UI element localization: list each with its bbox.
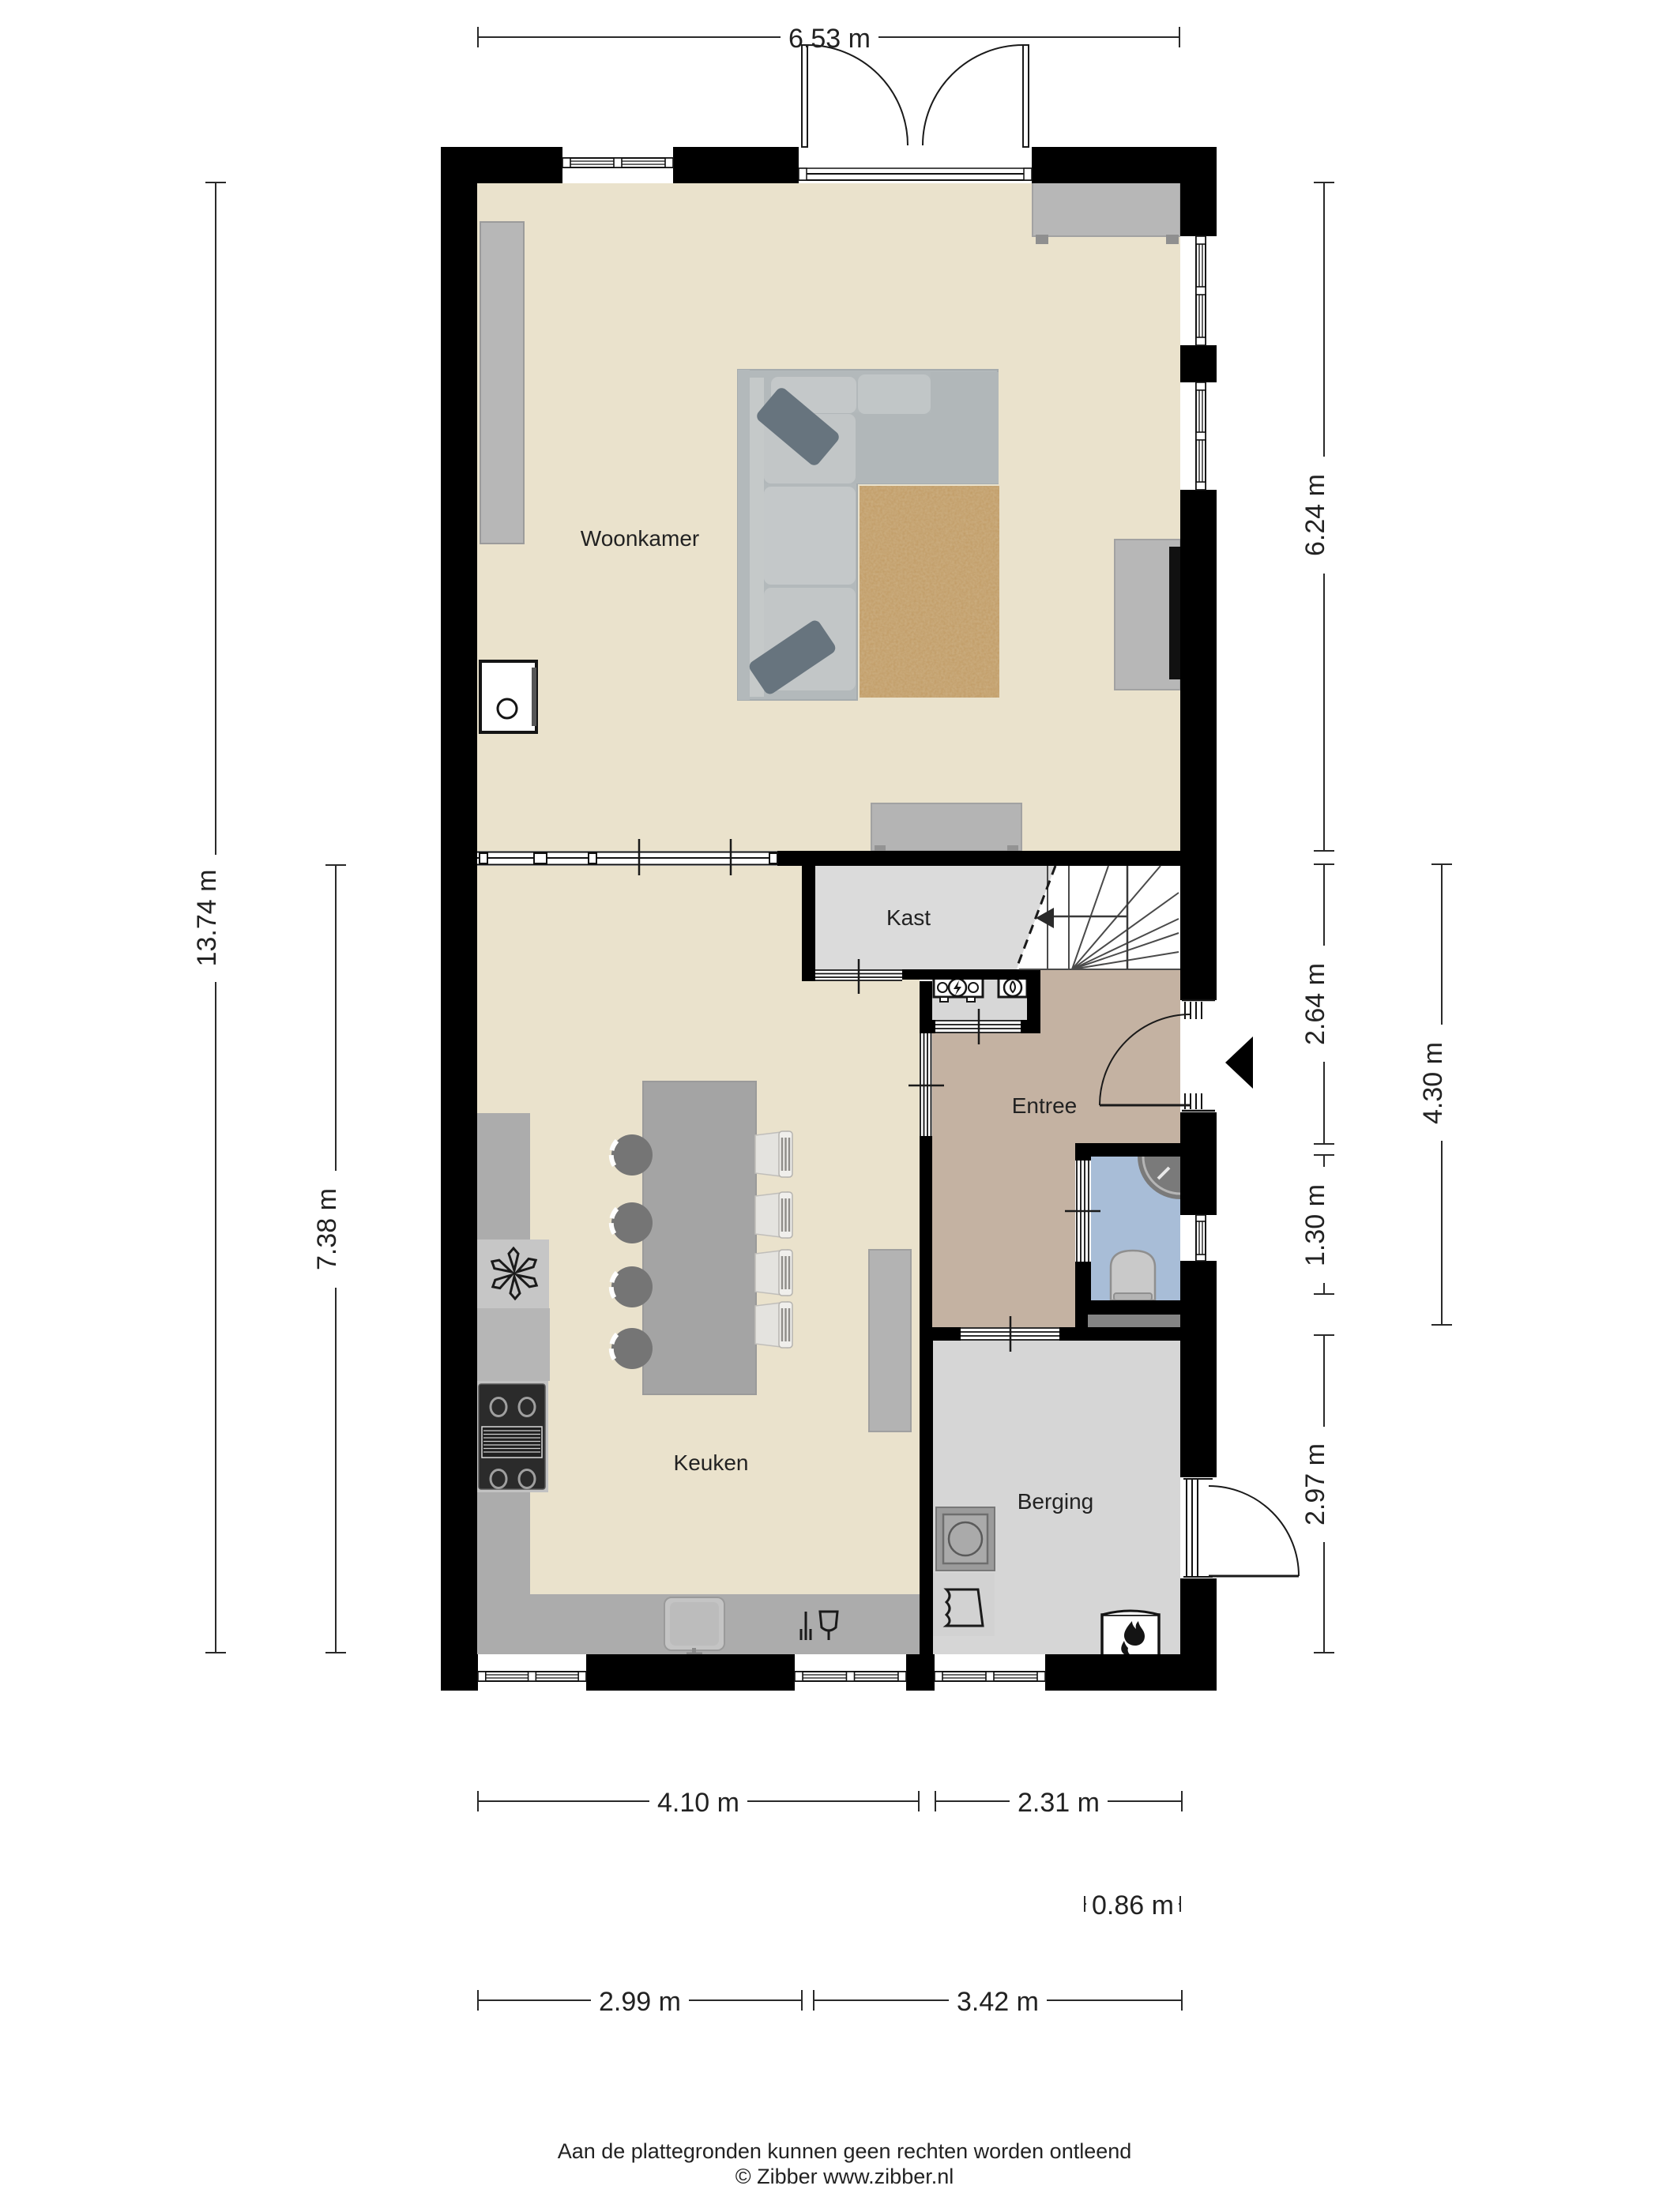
svg-text:3.42 m: 3.42 m [957,1987,1039,2017]
svg-text:Aan de plattegronden kunnen ge: Aan de plattegronden kunnen geen rechten… [558,2139,1132,2163]
svg-text:0.86 m: 0.86 m [1092,1890,1174,1920]
svg-text:Berging: Berging [1018,1489,1094,1514]
svg-text:7.38 m: 7.38 m [312,1188,342,1270]
svg-text:2.99 m: 2.99 m [599,1987,681,2017]
svg-text:Entree: Entree [1012,1093,1078,1118]
svg-text:13.74 m: 13.74 m [192,870,222,967]
svg-text:2.97 m: 2.97 m [1300,1443,1330,1525]
svg-text:2.64 m: 2.64 m [1300,963,1330,1045]
svg-text:Kast: Kast [886,905,931,930]
svg-text:4.10 m: 4.10 m [657,1788,739,1818]
svg-text:6.53 m: 6.53 m [788,24,871,54]
svg-text:4.30 m: 4.30 m [1418,1042,1448,1124]
svg-text:Keuken: Keuken [674,1450,749,1475]
svg-text:6.24 m: 6.24 m [1300,474,1330,556]
svg-text:Woonkamer: Woonkamer [581,526,699,551]
svg-text:2.31 m: 2.31 m [1018,1788,1100,1818]
svg-text:© Zibber www.zibber.nl: © Zibber www.zibber.nl [735,2165,954,2188]
svg-text:1.30 m: 1.30 m [1300,1184,1330,1266]
